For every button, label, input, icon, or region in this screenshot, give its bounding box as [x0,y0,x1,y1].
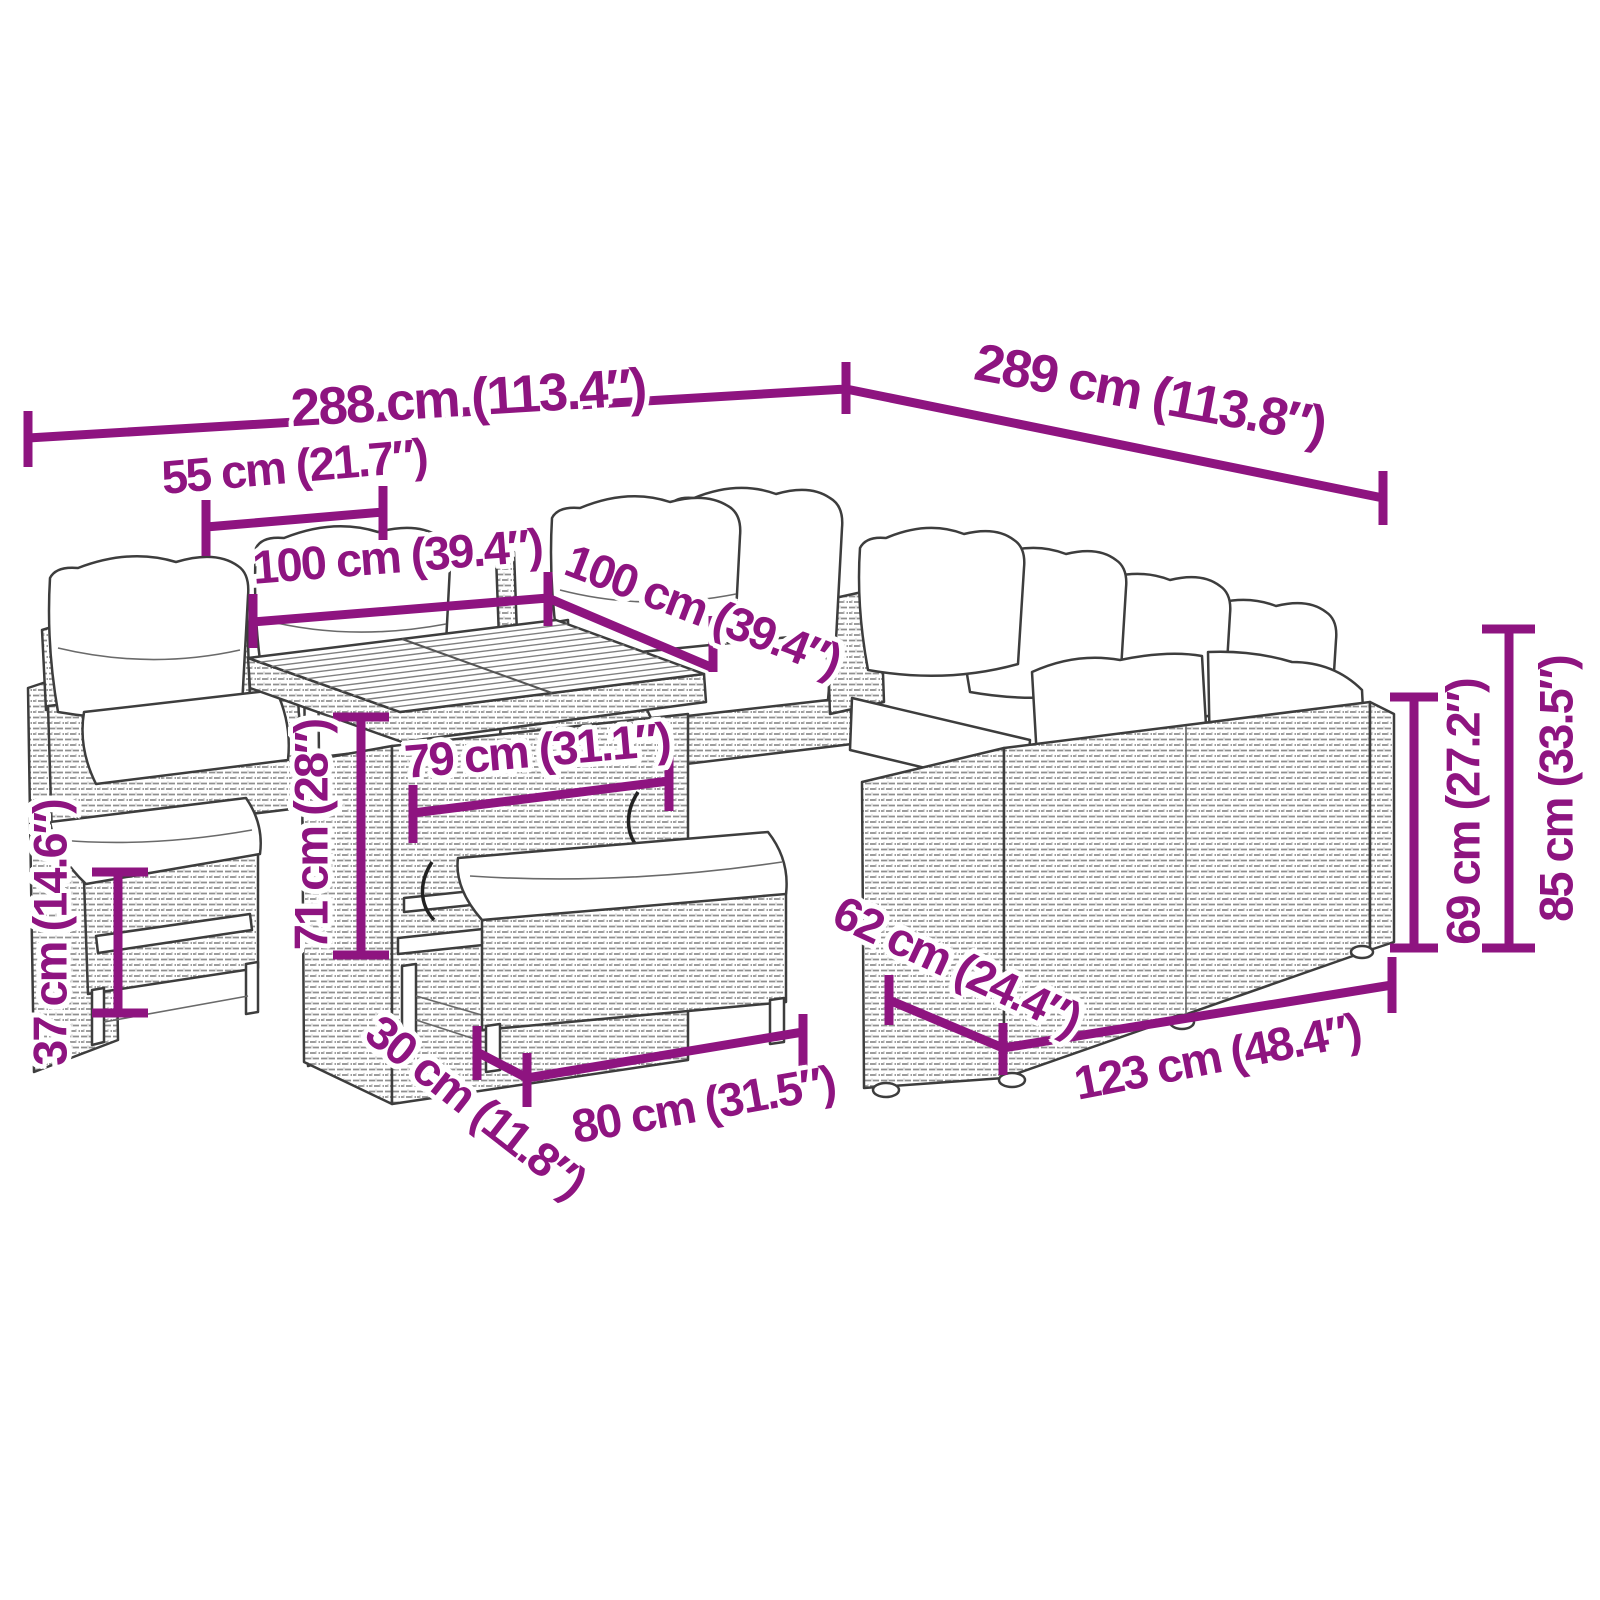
bench-leg [246,962,258,1014]
dim-label-table-height: 71 cm (28″) [284,720,339,950]
back-pillow [859,528,1024,676]
sofa-foot [999,1073,1025,1087]
sofa-foot [1351,946,1373,958]
back-pillow [49,556,248,719]
dimension-diagram: 288 cm (113.4″) 289 cm (113.8″) 55 cm (2… [0,0,1600,1600]
dim-label-small-bench-height: 37 cm (14.6″) [23,800,78,1066]
furniture-illustration [0,0,1600,1600]
dim-line-69 [1390,697,1438,948]
dim-label-backrest-height: 85 cm (33.5″) [1529,656,1584,922]
dim-label-seat-back-height: 69 cm (27.2″) [1436,679,1491,945]
sofa-foot [873,1083,899,1097]
sofa-right-side-face [1370,702,1394,950]
